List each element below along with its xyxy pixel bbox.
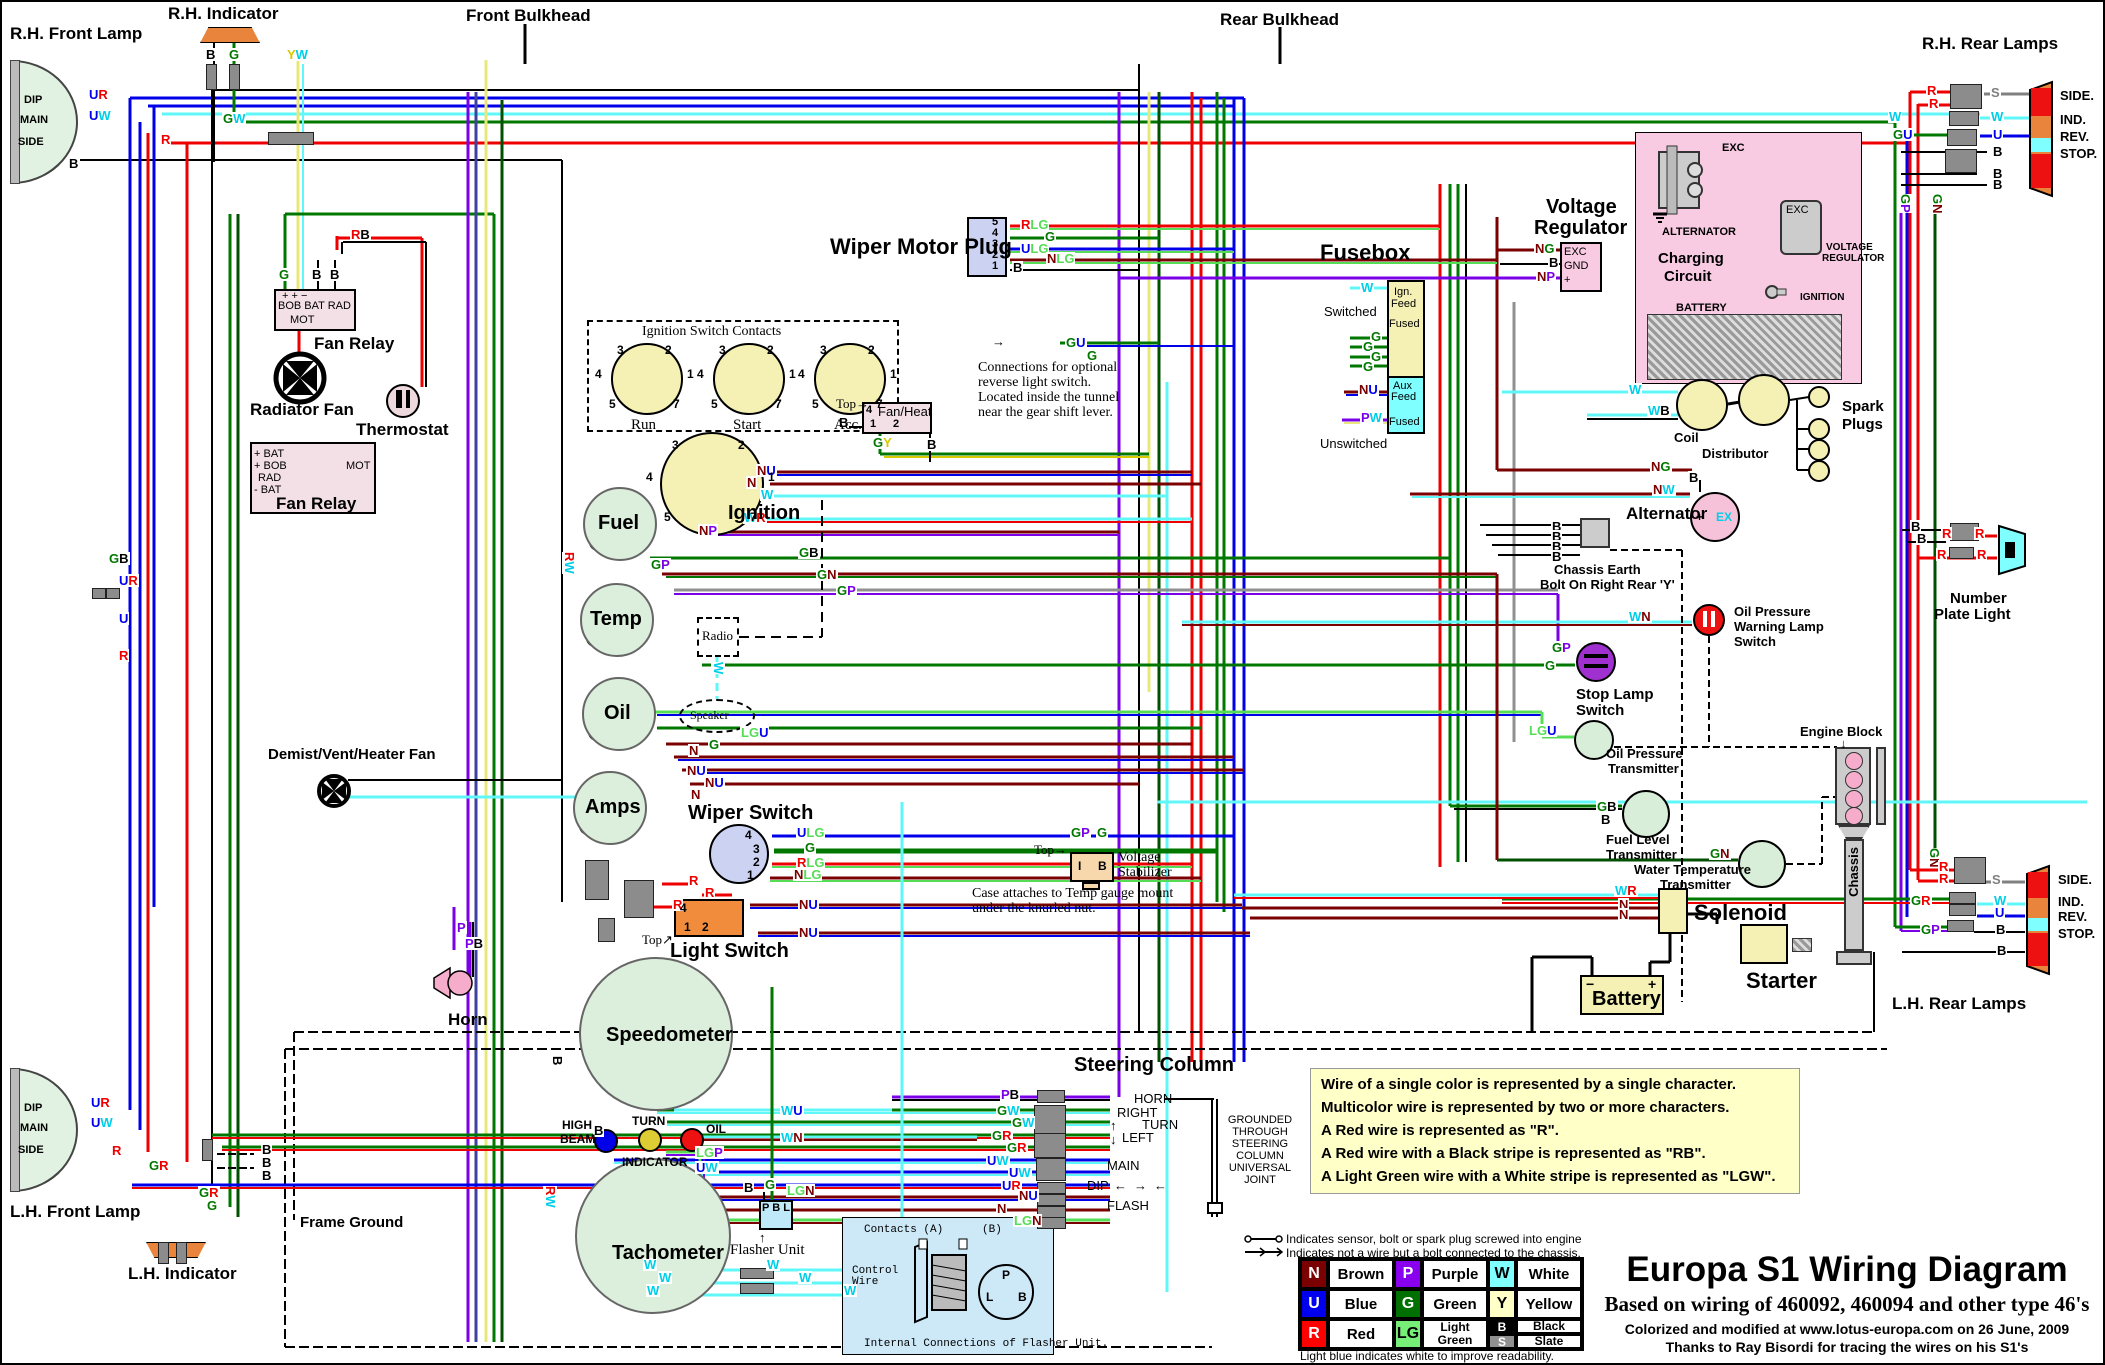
fi-pin-b: B	[1018, 1290, 1027, 1304]
wire-label-gb: GB	[798, 546, 820, 559]
wire-label-u: U	[1992, 128, 2003, 141]
isc-pin: 5	[609, 397, 616, 411]
ignition-pin-5: 5	[664, 510, 671, 524]
cc-charging-2: Circuit	[1664, 268, 1712, 285]
stab-pin-b: B	[1098, 859, 1107, 873]
wire-label-lgn: LGN	[786, 1184, 815, 1197]
wire-label-n: N	[690, 788, 701, 801]
sc-main: MAIN	[1107, 1158, 1140, 1173]
fb-fused-2: Fused	[1389, 416, 1420, 428]
lh-indicator-label: L.H. Indicator	[128, 1264, 237, 1284]
wire-label-gn: GN	[816, 568, 838, 581]
light-pin-4: 4	[680, 901, 687, 915]
horn-icon	[432, 964, 476, 1004]
cc-ignition-label: IGNITION	[1800, 292, 1844, 303]
wire-label-wn: WN	[780, 1131, 804, 1144]
key-name-blue: Blue	[1328, 1289, 1394, 1319]
connector-block	[1034, 1105, 1066, 1134]
stop-lamp-label-1: Stop Lamp	[1576, 686, 1654, 703]
rh-indicator-shape	[200, 27, 260, 43]
fanheat-pin-1: 1	[870, 418, 876, 430]
engine-block-side	[1876, 747, 1886, 825]
wire-label-wn: WN	[1628, 610, 1652, 623]
cc-charging-1: Charging	[1658, 250, 1724, 267]
wire-label-gw: GW	[1011, 1116, 1035, 1129]
oil-pressure-warning-switch	[1693, 604, 1725, 636]
lh-rear-lamp-shape	[2025, 864, 2051, 976]
connector-block	[1945, 149, 1977, 173]
wire-label-ng: NG	[1534, 242, 1556, 255]
wire-label-rw: RW	[562, 552, 576, 574]
wire-label-g: G	[1096, 826, 1108, 839]
wire-label-lgp: LGP	[695, 1146, 724, 1159]
wire-note-3: A Red wire is represented as "R".	[1321, 1122, 1799, 1139]
sc-down-arrow: ↓	[1110, 1132, 1117, 1147]
wire-label-b: B	[68, 157, 79, 170]
fan-relay-detail-label: Fan Relay	[276, 494, 356, 514]
oil-lamp-label: OIL	[706, 1122, 726, 1136]
wmp-pin-1: 1	[992, 260, 998, 272]
flasher-unit-label: Flasher Unit	[730, 1242, 805, 1259]
fanheat-top: Top	[836, 396, 856, 411]
fan-relay-row2: BOB BAT RAD	[278, 300, 351, 312]
isc-pin: 2	[767, 343, 774, 357]
radiator-fan-label: Radiator Fan	[250, 400, 354, 420]
light-pin-1: 1	[684, 920, 691, 934]
universal-joint-symbol	[1207, 1202, 1223, 1214]
wire-label-n: N	[1618, 908, 1629, 921]
speaker-label: Speaker	[690, 708, 729, 723]
thermostat-shape	[386, 384, 420, 418]
front-bulkhead-label: Front Bulkhead	[466, 6, 591, 26]
connector-block	[158, 1242, 169, 1264]
fb-feed-2: Feed	[1391, 391, 1416, 403]
chassis-earth-bolt	[1580, 518, 1610, 548]
demist-fan-icon	[316, 773, 352, 809]
wire-label-n: N	[688, 744, 699, 757]
wiper-motor-plug-label: Wiper Motor Plug	[830, 234, 1012, 260]
wire-label-uw: UW	[695, 1161, 719, 1174]
spark-plug-2	[1808, 418, 1830, 440]
spark-plugs-label-1: Spark	[1842, 398, 1884, 415]
wire-label-r: R	[1974, 527, 1985, 540]
flasher-pin-l: L	[783, 1202, 790, 1214]
flt-label-2: Transmitter	[1606, 847, 1677, 862]
isc-pin: 4	[595, 367, 602, 381]
connector-block	[740, 1283, 774, 1294]
grounded-6: JOINT	[1224, 1174, 1296, 1186]
distributor-label: Distributor	[1702, 446, 1768, 461]
key-name-green: Green	[1422, 1289, 1488, 1319]
demist-label: Demist/Vent/Heater Fan	[268, 746, 436, 763]
rh-rear-lamp-shape	[2028, 80, 2054, 198]
wire-label-b: B	[1916, 532, 1927, 545]
wire-label-nu: NU	[798, 926, 819, 939]
wire-label-r: R	[1928, 97, 1939, 110]
wire-label-b: B	[1996, 944, 2007, 957]
isc-pin: 5	[711, 397, 718, 411]
wire-label-b: B	[1548, 256, 1559, 269]
fr2-l2: + BOB	[254, 460, 287, 472]
connector-block	[1037, 1182, 1066, 1194]
wtt-label-2: Transmitter	[1660, 877, 1731, 892]
wire-label-uw: UW	[88, 109, 112, 122]
wire-label-pb: PB	[1000, 1088, 1020, 1101]
wire-label-b: B	[926, 438, 937, 451]
wire-label-ur: UR	[118, 574, 139, 587]
chassis-base	[1836, 951, 1872, 965]
key-chip-r: R	[1300, 1319, 1328, 1349]
lh-stop-label: STOP.	[2058, 926, 2095, 941]
wire-label-wu: WU	[780, 1104, 804, 1117]
connector-block	[1947, 920, 1974, 932]
solenoid-shape	[1658, 888, 1688, 934]
key-chip-n: N	[1300, 1259, 1328, 1289]
wire-label-wr: WR	[1614, 884, 1638, 897]
wire-label-nu: NU	[798, 898, 819, 911]
sc-dip-left2-arrow: ←	[1154, 1178, 1167, 1193]
key-name-white: White	[1516, 1259, 1582, 1289]
turn-lamp	[638, 1128, 662, 1152]
isc-pin: 4	[697, 367, 704, 381]
key-chip-w: W	[1488, 1259, 1516, 1289]
fusebox-label: Fusebox	[1320, 240, 1410, 266]
cc-exc-top: EXC	[1722, 142, 1745, 154]
isc-pin: 3	[820, 343, 827, 357]
wtt-label-1: Water Temperature	[1634, 862, 1751, 877]
wire-label-gu: GU	[1892, 128, 1914, 141]
reverse-note-2: reverse light switch.	[978, 375, 1091, 391]
turn-label: TURN	[632, 1114, 665, 1128]
cc-alternator-label: ALTERNATOR	[1662, 226, 1736, 238]
wiper-pin-4: 4	[745, 828, 752, 842]
connector-block	[1949, 111, 1979, 126]
wire-label-ur: UR	[88, 88, 109, 101]
wire-label-w: W	[1360, 281, 1374, 294]
wire-label-p: P	[456, 921, 467, 934]
connector-block	[598, 918, 615, 942]
wire-label-r: R	[1936, 548, 1947, 561]
temp-gauge-label: Temp	[590, 608, 642, 631]
wire-label-b: B	[329, 268, 340, 281]
diagram-subtitle: Based on wiring of 460092, 460094 and ot…	[1602, 1292, 2092, 1317]
wire-label-rb: RB	[350, 228, 371, 241]
isc-pin: 3	[617, 343, 624, 357]
wire-label-b: B	[261, 1169, 272, 1182]
wire-label-lgn: LGN	[1013, 1214, 1042, 1227]
high-beam-label-2: BEAM	[560, 1132, 595, 1146]
wire-note-4: A Red wire with a Black stripe is repres…	[1321, 1145, 1799, 1162]
grounded-4: COLUMN	[1224, 1150, 1296, 1162]
isc-switch-label: Start	[733, 417, 761, 434]
wire-label-gp: GP	[1551, 641, 1572, 654]
voltage-regulator-label-2: Regulator	[1534, 217, 1627, 240]
wire-label-r: R	[111, 1144, 122, 1157]
rh-lamp-pin-main: MAIN	[20, 114, 48, 126]
wire-note-5: A Light Green wire with a White stripe i…	[1321, 1168, 1799, 1185]
right-arrow-icon: →	[1054, 842, 1067, 857]
reverse-arrow: →	[992, 334, 1005, 350]
wire-label-gr: GR	[148, 1159, 170, 1172]
wire-label-g: G	[278, 268, 290, 281]
wire-label-gw: GW	[222, 112, 246, 125]
spark-plug-1	[1808, 386, 1830, 408]
sc-up-arrow: ↑	[1110, 1118, 1117, 1133]
flasher-pin-p: P	[762, 1202, 769, 1214]
spark-plugs-label-2: Plugs	[1842, 416, 1883, 433]
wire-label-s: S	[1991, 873, 2002, 886]
wire-label-uw: UW	[90, 1116, 114, 1129]
lh-rear-lamps-label: L.H. Rear Lamps	[1892, 994, 2026, 1014]
fb-ign: Ign.	[1394, 286, 1412, 298]
rh-front-lamp-backing	[10, 60, 20, 184]
lh-rev-label: REV.	[2058, 909, 2087, 924]
speedometer-label: Speedometer	[606, 1024, 733, 1047]
isc-pin: 1	[687, 367, 694, 381]
wire-label-gp: GP	[1920, 923, 1941, 936]
wire-label-r: R	[1941, 527, 1952, 540]
lh-lamp-pin-main: MAIN	[20, 1122, 48, 1134]
fr2-l1: + BAT	[254, 448, 284, 460]
sc-horn: HORN	[1134, 1091, 1172, 1106]
starter-terminal	[1792, 938, 1812, 952]
flasher-contacts-a: Contacts (A)	[864, 1224, 943, 1236]
wire-label-gr: GR	[1006, 1141, 1028, 1154]
light-switch-top: Top	[642, 932, 662, 947]
lh-lamp-pin-side: SIDE	[18, 1144, 44, 1156]
key-name-red: Red	[1328, 1319, 1394, 1349]
diagram-title: Europa S1 Wiring Diagram	[1602, 1250, 2092, 1290]
stab-top: Top	[1034, 842, 1054, 857]
wire-label-r: R	[1976, 548, 1987, 561]
sc-dip-left-arrow: ←	[1114, 1178, 1127, 1193]
wire-label-gn: GN	[1930, 194, 1944, 214]
cc-vreg-exc: EXC	[1786, 204, 1809, 216]
horn-label: Horn	[448, 1010, 488, 1030]
wire-label-pw: PW	[1360, 411, 1383, 424]
fan-relay-label: Fan Relay	[314, 334, 394, 354]
fr2-l3: RAD	[258, 472, 281, 484]
wire-label-nw: NW	[1652, 483, 1676, 496]
rh-lamp-pin-dip: DIP	[24, 94, 42, 106]
wire-label-nlg: NLG	[1046, 252, 1075, 265]
diagram-credit-1: Colorized and modified at www.lotus-euro…	[1602, 1321, 2092, 1337]
oil-gauge-label: Oil	[604, 702, 631, 725]
wire-label-w: W	[1990, 110, 2004, 123]
key-chip-s: S	[1488, 1334, 1516, 1349]
rh-front-lamp-label: R.H. Front Lamp	[10, 24, 142, 44]
fi-pin-p: P	[1002, 1268, 1010, 1282]
wire-label-gp: GP	[650, 558, 671, 571]
wire-label-r: R	[118, 649, 129, 662]
vr-gnd: GND	[1564, 260, 1588, 272]
wire-label-g: G	[1362, 360, 1374, 373]
stop-lamp-switch	[1576, 642, 1616, 682]
chassis-earth-label-1: Chassis Earth	[1554, 562, 1641, 577]
wiring-diagram: DIP MAIN SIDE R.H. Front Lamp DIP MAIN S…	[0, 0, 2105, 1365]
grounded-1: GROUNDED	[1224, 1114, 1296, 1126]
wire-label-g: G	[804, 841, 816, 854]
wire-label-g: G	[708, 738, 720, 751]
key-chip-p: P	[1394, 1259, 1422, 1289]
connector-block	[624, 880, 654, 918]
isc-pin: 7	[673, 397, 680, 411]
rh-lamp-pin-side: SIDE	[18, 136, 44, 148]
wire-label-w: W	[760, 488, 774, 501]
isc-pin: 3	[719, 343, 726, 357]
key-chip-b: B	[1488, 1319, 1516, 1334]
stab-pin-i: I	[1078, 859, 1081, 873]
ignition-pin-2: 2	[738, 438, 745, 452]
ignition-label: Ignition	[728, 502, 800, 525]
wire-label-b: B	[311, 268, 322, 281]
wire-label-nu: NU	[704, 776, 725, 789]
voltage-regulator-label-1: Voltage	[1546, 196, 1617, 219]
flasher-contacts-b: (B)	[982, 1224, 1002, 1236]
wire-label-nu: NU	[1018, 1189, 1039, 1202]
lh-ind-label: IND.	[2058, 894, 2084, 909]
opt-label-2: Transmitter	[1608, 761, 1679, 776]
wire-label-s: S	[1990, 86, 2001, 99]
wire-label-gu: GU	[1065, 336, 1087, 349]
wire-label-w: W	[766, 1258, 780, 1271]
connector-block	[1949, 892, 1976, 904]
key-name-brown: Brown	[1328, 1259, 1394, 1289]
solenoid-label: Solenoid	[1694, 900, 1787, 926]
starter-label: Starter	[1746, 968, 1817, 994]
wire-label-w: W	[711, 662, 725, 674]
wiper-pin-1: 1	[747, 868, 754, 882]
wire-label-n: N	[746, 476, 757, 489]
wire-label-r: R	[688, 874, 699, 887]
rh-ind-label: IND.	[2060, 112, 2086, 127]
number-plate-label-1: Number	[1950, 590, 2007, 607]
wire-note-2: Multicolor wire is represented by two or…	[1321, 1099, 1799, 1116]
wire-label-lgu: LGU	[1528, 724, 1557, 737]
ignition-pin-3: 3	[672, 438, 679, 452]
wire-label-gn: GN	[1709, 847, 1731, 860]
wiper-switch-label: Wiper Switch	[688, 802, 813, 825]
cc-alternator-icon	[1647, 144, 1727, 224]
vr-plus: +	[1564, 274, 1570, 286]
stab-note-2: under the knurled nut.	[972, 901, 1096, 917]
wire-label-g: G	[1544, 659, 1556, 672]
flt-label-1: Fuel Level	[1606, 832, 1670, 847]
wire-label-pb: PB	[464, 937, 484, 950]
voltage-stabilizer-label2: Stabilizer	[1118, 865, 1172, 881]
wire-label-gr: GR	[1910, 894, 1932, 907]
lh-side-label: SIDE.	[2058, 872, 2092, 887]
wire-label-g: G	[764, 1178, 776, 1191]
wire-label-ulg: ULG	[796, 826, 825, 839]
connector-block	[268, 132, 314, 145]
rh-rear-lamps-label: R.H. Rear Lamps	[1922, 34, 2058, 54]
grounded-2: THROUGH	[1224, 1126, 1296, 1138]
wire-label-w: W	[1888, 110, 1902, 123]
cc-ignition-key-icon	[1764, 282, 1788, 302]
fr2-mot: MOT	[346, 460, 370, 472]
connector-block	[1036, 1158, 1066, 1181]
fan-relay-mot: MOT	[290, 314, 314, 326]
connector-block	[1034, 1133, 1066, 1158]
thermostat-label: Thermostat	[356, 420, 449, 440]
wire-label-r: R	[160, 133, 171, 146]
wire-label-gp: GP	[836, 584, 857, 597]
connector-block	[585, 860, 609, 900]
isc-pin: 1	[789, 367, 796, 381]
connector-block	[1947, 129, 1977, 146]
wire-label-b: B	[1012, 261, 1023, 274]
reverse-note-3: Located inside the tunnel	[978, 390, 1119, 406]
indicator-label: INDICATOR	[622, 1155, 688, 1169]
wire-label-n: N	[996, 1202, 1007, 1215]
key-chip-y: Y	[1488, 1289, 1516, 1319]
wire-label-gb: GB	[108, 552, 130, 565]
frame-ground-label: Frame Ground	[300, 1214, 403, 1231]
fb-fused-1: Fused	[1389, 318, 1420, 330]
light-switch-label: Light Switch	[670, 940, 789, 963]
wire-label-r: R	[1938, 872, 1949, 885]
wire-label-b: B	[1600, 813, 1611, 826]
spark-plug-3	[1808, 439, 1830, 461]
flasher-internal-title: Internal Connections of Flasher Unit.	[864, 1338, 1108, 1350]
number-plate-label-2: Plate Light	[1934, 606, 2011, 623]
flasher-pin-b: B	[772, 1202, 780, 1214]
key-name-yellow: Yellow	[1516, 1289, 1582, 1319]
sc-left: LEFT	[1122, 1130, 1154, 1145]
connector-block	[1950, 84, 1982, 109]
sc-dip: DIP	[1087, 1178, 1109, 1193]
key-chip-g: G	[1394, 1289, 1422, 1319]
reverse-note-4: near the gear shift lever.	[978, 405, 1113, 421]
ignition-pin-1: 1	[768, 470, 775, 484]
unswitched-label: Unswitched	[1320, 436, 1387, 451]
alt-ex: EX	[1716, 510, 1732, 524]
high-beam-label-1: HIGH	[562, 1118, 592, 1132]
cc-vreg-label-1: VOLTAGE	[1826, 242, 1873, 253]
isc-pin: 2	[868, 343, 875, 357]
opt-label-1: Oil Pressure	[1606, 746, 1683, 761]
diagram-credit-2: Thanks to Ray Bisordi for tracing the wi…	[1602, 1339, 2092, 1355]
fanheat-pin-4: 4	[866, 404, 872, 416]
isc-pin: 1	[890, 367, 897, 381]
wire-label-ur: UR	[90, 1096, 111, 1109]
chassis-earth-label-2: Bolt On Right Rear 'Y'	[1540, 577, 1675, 592]
wire-label-rw: RW	[543, 1186, 557, 1208]
stop-lamp-label-2: Switch	[1576, 702, 1624, 719]
connector-block	[1037, 1090, 1065, 1103]
key-chip-u: U	[1300, 1289, 1328, 1319]
connector-block	[229, 64, 240, 90]
color-key-table: N Brown P Purple W White U Blue G Green …	[1298, 1257, 1584, 1351]
sc-flash: FLASH	[1107, 1198, 1149, 1213]
spark-plug-4	[1808, 460, 1830, 482]
fanheat-pin-2: 2	[893, 418, 899, 430]
isc-pin: 2	[665, 343, 672, 357]
connector-block	[1954, 857, 1986, 884]
connector-block	[1037, 1194, 1066, 1206]
sc-dip-right-arrow: →	[1134, 1178, 1147, 1193]
engine-block-arrow: ↓	[1840, 736, 1847, 751]
wire-label-np: NP	[698, 524, 718, 537]
rh-indicator-label: R.H. Indicator	[168, 4, 279, 24]
wire-label-b: B	[1992, 145, 2003, 158]
radiator-fan-icon	[273, 351, 327, 405]
wire-label-b: B	[1688, 471, 1699, 484]
tachometer-label: Tachometer	[612, 1242, 724, 1265]
steering-column-label: Steering Column	[1074, 1054, 1234, 1077]
legend-line-1: Indicates sensor, bolt or spark plug scr…	[1286, 1232, 1582, 1246]
